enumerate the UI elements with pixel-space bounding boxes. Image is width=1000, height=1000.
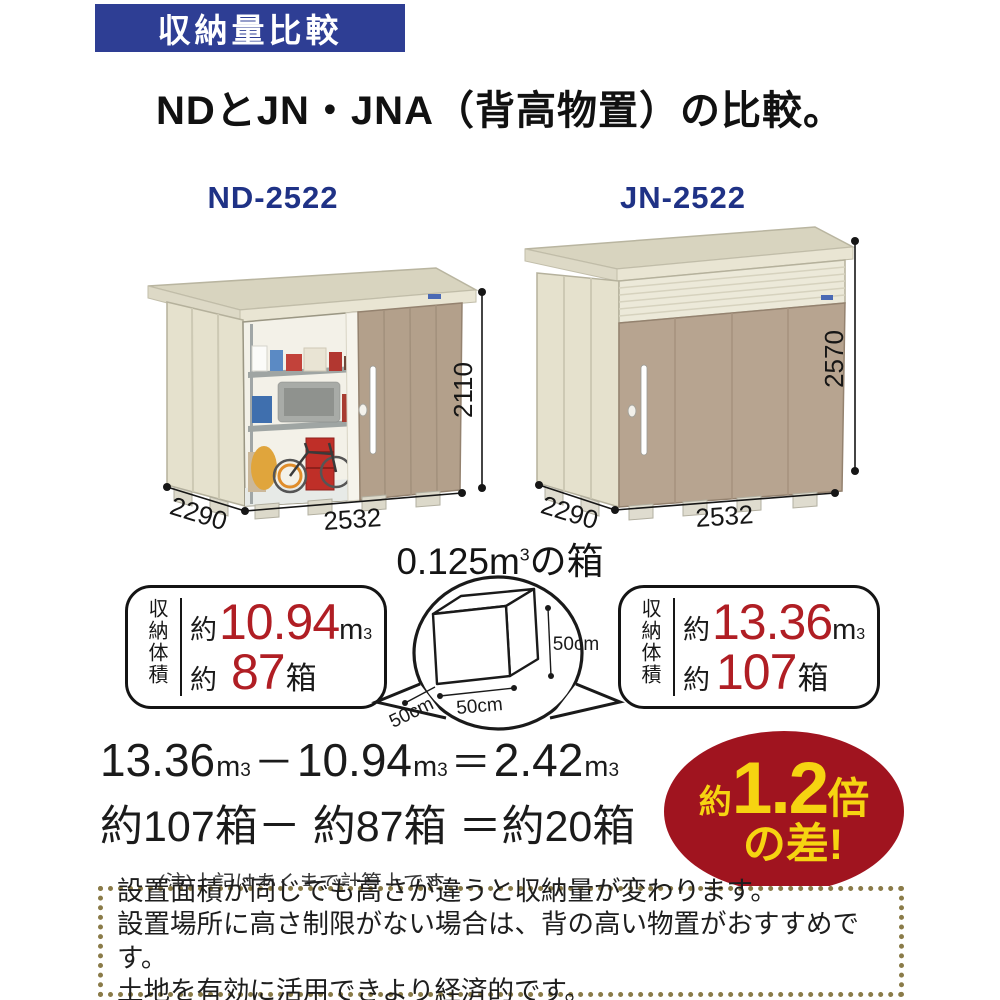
calc-unit-sup: 3	[608, 761, 619, 782]
box-volume-value: 0.125	[396, 541, 489, 582]
reference-box-title: 0.125m3の箱	[335, 531, 665, 585]
shed-jn-door	[619, 303, 845, 507]
approx-label: 約	[190, 667, 217, 694]
volume-unit: m	[339, 616, 363, 645]
cube-dim-depth: 50cm	[386, 693, 437, 732]
box-volume-unit: m	[489, 541, 520, 582]
stat-boxes-row-jn: 約 107 箱	[683, 647, 867, 697]
shed-nd-side-wall	[167, 302, 245, 506]
calculation-block: 13.36 m 3 － 10.94 m 3 ＝ 2.42 m 3 約107箱－ …	[100, 736, 665, 897]
badge-times: 倍	[827, 780, 869, 818]
balloon-tail-left	[376, 684, 446, 718]
advice-line: 土地を有効に活用できより経済的です。	[117, 975, 885, 1000]
volume-value-jn: 13.36	[712, 597, 832, 647]
boxes-value-jn: 107	[716, 647, 796, 697]
model-label-jn: JN-2522	[568, 180, 798, 216]
cube-dim-width: 50cm	[455, 694, 503, 719]
section-banner: 収納量比較	[95, 4, 405, 52]
calc-unit: m	[584, 752, 608, 783]
calc-operator: －	[254, 742, 294, 785]
model-label-nd: ND-2522	[158, 180, 388, 216]
shed-illustration-jn: 2570 2290 2532	[515, 225, 880, 533]
balloon-tail-right	[550, 684, 620, 718]
shed-nd-door-lock	[359, 404, 367, 416]
reference-cube	[433, 589, 538, 684]
approx-label: 約	[190, 617, 217, 644]
approx-label: 約	[683, 667, 710, 694]
section-banner-label: 収納量比較	[158, 4, 343, 52]
calc-unit-sup: 3	[240, 761, 251, 782]
advice-box: 設置面積が同じでも高さが違うと収納量が変わります。 設置場所に高さ制限がない場合…	[98, 886, 904, 997]
shed-jn-door-handle	[641, 365, 647, 455]
shed-jn-door-lock	[628, 405, 636, 417]
volume-unit-sup: 3	[856, 627, 865, 643]
cube-dimensions	[402, 605, 554, 706]
cube-dim-height: 50cm	[553, 634, 599, 655]
storage-stat-card-nd: 収納体積 約 10.94 m 3 約 87 箱	[125, 585, 387, 709]
stat-volume-row-jn: 約 13.36 m 3	[683, 597, 867, 647]
badge-value: 1.2	[732, 756, 827, 822]
calc-unit-sup: 3	[437, 761, 448, 782]
callout-balloon: 50cm 50cm 50cm	[358, 566, 642, 744]
shed-nd-door-handle	[370, 366, 376, 454]
stat-card-divider	[180, 598, 182, 696]
stat-boxes-row-nd: 約 87 箱	[190, 647, 374, 697]
volume-value-nd: 10.94	[219, 597, 339, 647]
calculation-volume-equation: 13.36 m 3 － 10.94 m 3 ＝ 2.42 m 3	[100, 736, 665, 786]
badge-approx: 約	[699, 787, 732, 817]
shed-jn-logo-sticker	[821, 295, 833, 300]
volume-unit: m	[832, 616, 856, 645]
difference-badge-line2: の差!	[743, 824, 843, 867]
shed-jn-side-wall	[537, 273, 619, 507]
volume-unit-sup: 3	[363, 627, 372, 643]
boxes-unit: 箱	[797, 663, 828, 694]
comparison-title: NDとJN・JNA（背高物置）の比較。	[0, 78, 1000, 136]
boxes-unit: 箱	[286, 663, 317, 694]
stat-card-label-jn: 収納体積	[635, 598, 664, 696]
advice-line: 設置面積が同じでも高さが違うと収納量が変わります。	[117, 875, 885, 908]
dimension-width-nd: 2532	[322, 502, 382, 534]
calc-value: 13.36	[100, 736, 215, 786]
approx-label: 約	[683, 617, 710, 644]
difference-badge: 約 1.2 倍 の差!	[664, 731, 904, 892]
calc-value: 10.94	[297, 736, 412, 786]
dimension-height-jn: 2570	[819, 330, 849, 388]
stat-card-divider	[673, 598, 675, 696]
page: 収納量比較 NDとJN・JNA（背高物置）の比較。 ND-2522 JN-252…	[0, 0, 1000, 1000]
calc-value: 2.42	[494, 736, 584, 786]
stat-card-label-nd: 収納体積	[142, 598, 171, 696]
dimension-height-nd: 2110	[448, 362, 478, 418]
stat-volume-row-nd: 約 10.94 m 3	[190, 597, 374, 647]
calc-unit: m	[216, 752, 240, 783]
shed-nd-door	[358, 294, 462, 500]
boxes-value-nd: 87	[231, 647, 285, 697]
shed-nd-logo-sticker	[428, 294, 441, 299]
box-volume-unit-sup: 3	[520, 545, 530, 565]
calculation-boxes-equation: 約107箱－ 約87箱 ＝約20箱	[100, 792, 665, 854]
difference-badge-line1: 約 1.2 倍	[699, 756, 870, 822]
calc-unit: m	[413, 752, 437, 783]
shed-illustration-nd: 2110 2290 2532	[140, 256, 505, 534]
calc-operator: ＝	[451, 742, 491, 785]
box-title-suffix: の箱	[530, 541, 604, 582]
advice-line: 設置場所に高さ制限がない場合は、背の高い物置がおすすめです。	[117, 908, 885, 975]
dimension-width-jn: 2532	[694, 499, 754, 533]
shed-nd-interior	[243, 312, 360, 506]
storage-stat-card-jn: 収納体積 約 13.36 m 3 約 107 箱	[618, 585, 880, 709]
